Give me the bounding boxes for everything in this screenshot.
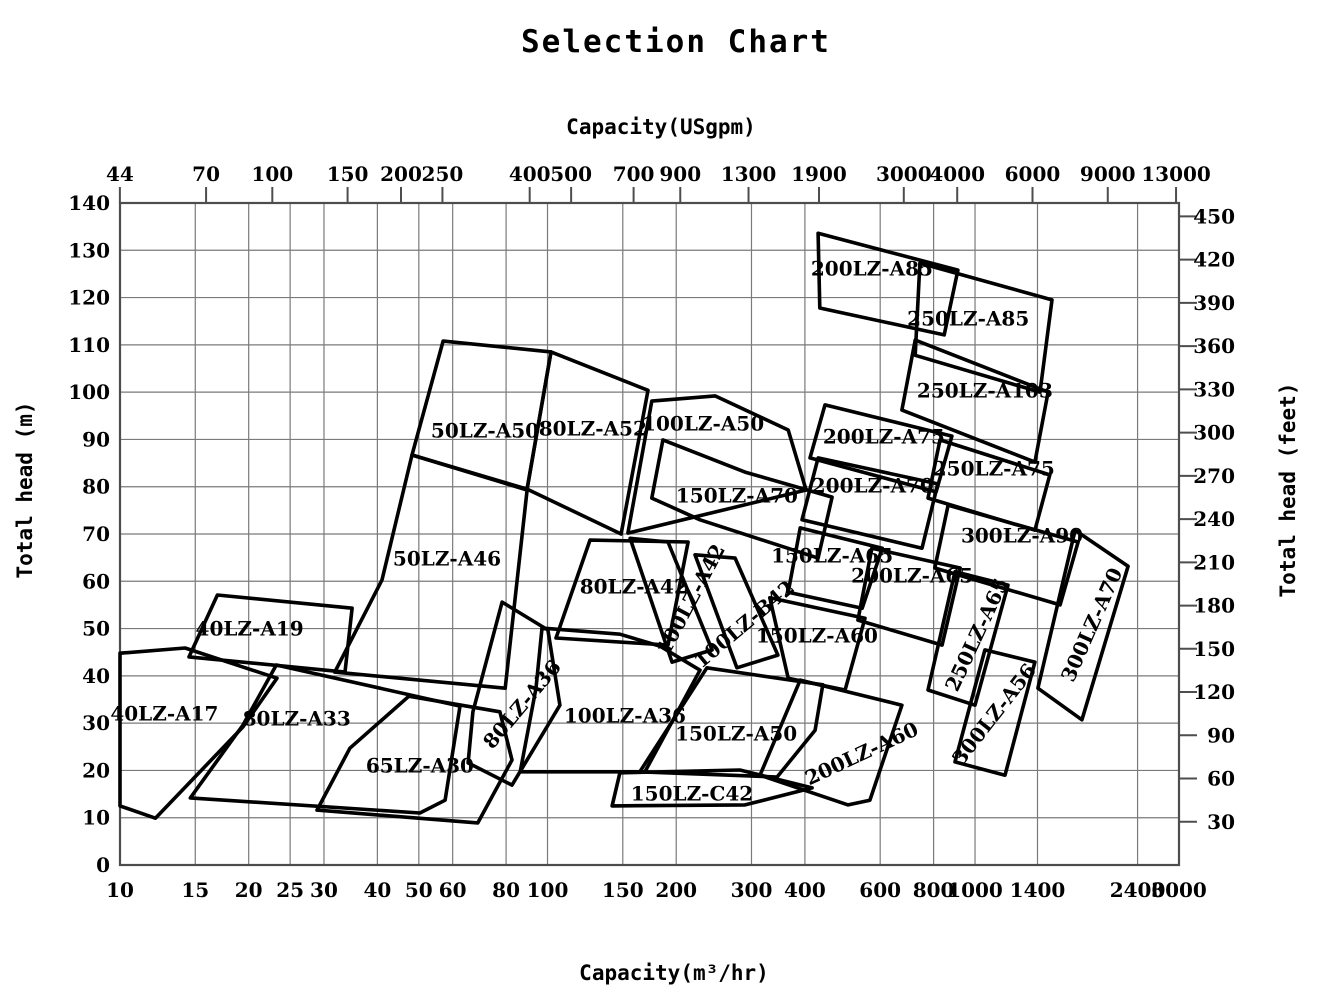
bottom-axis-tick-label: 25 — [276, 878, 304, 902]
pump-region-label-200lz-a75: 200LZ-A75 — [823, 425, 945, 449]
pump-region-label-40lz-a19: 40LZ-A19 — [196, 617, 304, 641]
pump-region-50lz-a46 — [335, 455, 527, 688]
top-axis-tick-label: 100 — [251, 162, 293, 186]
top-axis-tick-label: 3000 — [876, 162, 932, 186]
pump-region-label-80lz-a33: 80LZ-A33 — [243, 706, 351, 730]
bottom-axis-tick-label: 1000 — [947, 878, 1003, 902]
pump-region-label-150lz-a60: 150LZ-A60 — [756, 624, 878, 648]
left-axis-tick-label: 0 — [96, 853, 110, 877]
top-axis-tick-label: 44 — [106, 162, 134, 186]
bottom-axis-tick-label: 400 — [784, 878, 826, 902]
bottom-axis-tick-label: 10 — [106, 878, 134, 902]
right-axis-tick-label: 360 — [1193, 334, 1235, 358]
left-axis-tick-label: 100 — [68, 380, 110, 404]
top-axis-tick-label: 700 — [613, 162, 655, 186]
top-axis-tick-label: 1900 — [791, 162, 847, 186]
right-axis-tick-label: 330 — [1193, 377, 1235, 401]
pump-region-label-250lz-a85: 250LZ-A85 — [907, 306, 1029, 330]
top-axis-tick-label: 250 — [422, 162, 464, 186]
top-axis-tick-label: 70 — [192, 162, 220, 186]
left-axis-tick-label: 140 — [68, 191, 110, 215]
right-axis-tick-label: 210 — [1193, 550, 1235, 574]
pump-region-label-80lz-a42: 80LZ-A42 — [580, 574, 688, 598]
pump-region-label-80lz-a52: 80LZ-A52 — [539, 417, 647, 441]
bottom-axis-tick-label: 60 — [439, 878, 467, 902]
bottom-axis-tick-label: 30 — [310, 878, 338, 902]
left-axis-tick-label: 110 — [68, 333, 110, 357]
pump-region-label-50lz-a46: 50LZ-A46 — [393, 547, 501, 571]
right-axis-tick-label: 60 — [1207, 767, 1235, 791]
top-axis-tick-label: 400 — [509, 162, 551, 186]
top-axis-tick-label: 150 — [327, 162, 369, 186]
pump-region-40lz-a17 — [120, 648, 277, 818]
bottom-axis-tick-label: 600 — [859, 878, 901, 902]
top-axis-tick-label: 200 — [380, 162, 422, 186]
pump-region-label-200lz-a65: 200LZ-A65 — [851, 564, 973, 588]
pump-region-label-250lz-a103: 250LZ-A103 — [917, 379, 1053, 403]
right-axis-tick-label: 300 — [1193, 421, 1235, 445]
selection-chart-page: 4470100150200250400500700900130019003000… — [0, 0, 1324, 1004]
left-axis-tick-label: 10 — [82, 806, 110, 830]
left-axis-tick-label: 40 — [82, 664, 110, 688]
left-axis-tick-label: 130 — [68, 238, 110, 262]
bottom-axis-tick-label: 3000 — [1151, 878, 1207, 902]
right-axis-title: Total head (feet) — [1276, 383, 1300, 598]
right-axis-tick-label: 150 — [1193, 637, 1235, 661]
right-axis-tick-label: 390 — [1193, 291, 1235, 315]
pump-selection-chart: 4470100150200250400500700900130019003000… — [0, 0, 1324, 1004]
bottom-axis-tick-label: 20 — [235, 878, 263, 902]
pump-region-label-100lz-a36: 100LZ-A36 — [564, 704, 686, 728]
left-axis-tick-label: 90 — [82, 427, 110, 451]
top-axis-tick-label: 1300 — [721, 162, 777, 186]
pump-region-label-150lz-a70: 150LZ-A70 — [676, 484, 798, 508]
left-axis-tick-label: 120 — [68, 286, 110, 310]
bottom-axis-tick-label: 15 — [181, 878, 209, 902]
pump-region-label-250lz-a75: 250LZ-A75 — [933, 457, 1055, 481]
pump-region-label-40lz-a17: 40LZ-A17 — [110, 702, 218, 726]
pump-region-label-50lz-a50: 50LZ-A50 — [431, 418, 539, 442]
top-axis-tick-label: 4000 — [929, 162, 985, 186]
right-axis-tick-label: 180 — [1193, 594, 1235, 618]
bottom-axis-tick-label: 1400 — [1010, 878, 1066, 902]
bottom-axis-title: Capacity(m³/hr) — [579, 961, 769, 985]
top-axis-tick-label: 6000 — [1005, 162, 1061, 186]
left-axis-tick-label: 50 — [82, 617, 110, 641]
pump-region-label-65lz-a30: 65LZ-A30 — [366, 754, 474, 778]
bottom-axis-tick-label: 80 — [492, 878, 520, 902]
pump-region-80lz-a33 — [190, 665, 460, 813]
right-axis-tick-label: 270 — [1193, 464, 1235, 488]
pump-region-label-200lz-a85: 200LZ-A85 — [811, 257, 933, 281]
right-axis-tick-label: 240 — [1193, 507, 1235, 531]
left-axis-tick-label: 70 — [82, 522, 110, 546]
bottom-axis-tick-label: 100 — [527, 878, 569, 902]
bottom-axis-tick-label: 50 — [405, 878, 433, 902]
left-axis-tick-label: 30 — [82, 711, 110, 735]
pump-region-label-150lz-a50: 150LZ-A50 — [675, 722, 797, 746]
bottom-axis-tick-label: 150 — [602, 878, 644, 902]
right-axis-tick-label: 120 — [1193, 680, 1235, 704]
top-axis-tick-label: 900 — [659, 162, 701, 186]
top-axis-tick-label: 500 — [550, 162, 592, 186]
pump-region-label-150lz-c42: 150LZ-C42 — [631, 782, 753, 806]
top-axis-tick-label: 9000 — [1080, 162, 1136, 186]
left-axis-tick-label: 60 — [82, 569, 110, 593]
bottom-axis-tick-label: 300 — [731, 878, 773, 902]
right-axis-tick-label: 30 — [1207, 810, 1235, 834]
pump-region-label-300lz-a90: 300LZ-A90 — [961, 523, 1083, 547]
pump-region-80lz-a52 — [527, 352, 648, 534]
left-axis-tick-label: 80 — [82, 475, 110, 499]
left-axis-title: Total head (m) — [13, 401, 37, 578]
pump-region-label-200lz-a70: 200LZ-A70 — [812, 474, 934, 498]
pump-region-label-100lz-a50: 100LZ-A50 — [642, 412, 764, 436]
pump-region-label-200lz-a60: 200LZ-A60 — [801, 717, 922, 790]
right-axis-tick-label: 420 — [1193, 248, 1235, 272]
top-axis-tick-label: 13000 — [1141, 162, 1211, 186]
bottom-axis-tick-label: 40 — [363, 878, 391, 902]
right-axis-tick-label: 450 — [1193, 204, 1235, 228]
top-axis-title: Capacity(USgpm) — [566, 115, 756, 139]
left-axis-tick-label: 20 — [82, 758, 110, 782]
pump-region-label-80lz-a36: 80LZ-A36 — [478, 655, 566, 753]
chart-title: Selection Chart — [521, 24, 831, 60]
bottom-axis-tick-label: 200 — [655, 878, 697, 902]
right-axis-tick-label: 90 — [1207, 723, 1235, 747]
